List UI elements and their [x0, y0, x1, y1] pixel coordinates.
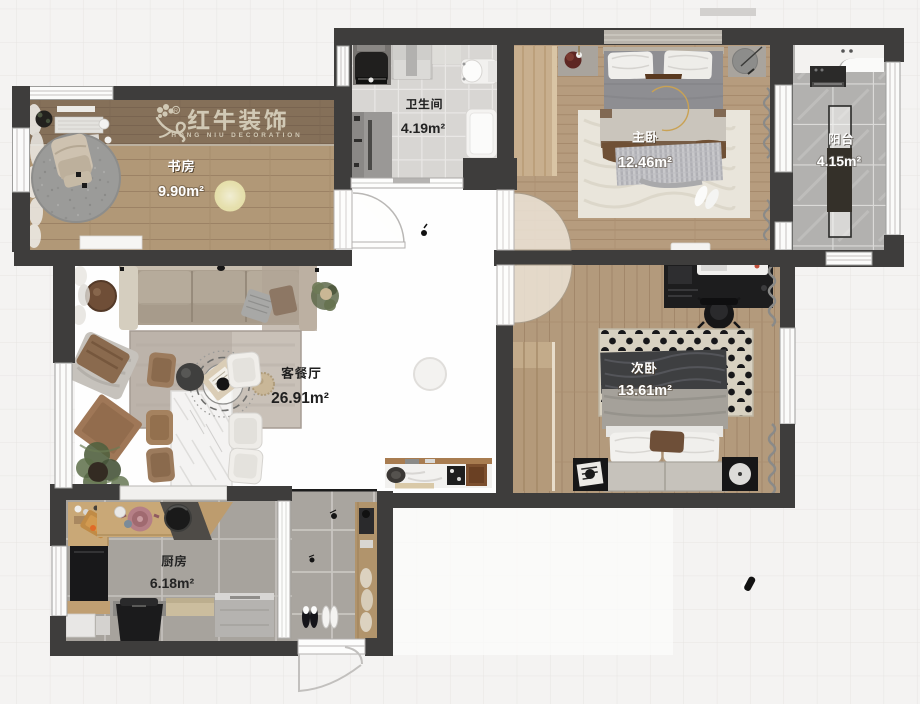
svg-text:4.19m²: 4.19m² — [401, 120, 446, 136]
svg-text:9.90m²: 9.90m² — [158, 184, 204, 200]
svg-text:26.91m²: 26.91m² — [271, 390, 329, 407]
svg-text:4.15m²: 4.15m² — [817, 153, 862, 169]
svg-text:13.61m²: 13.61m² — [618, 383, 672, 399]
svg-text:HONG NIU DECORATION: HONG NIU DECORATION — [171, 132, 302, 139]
svg-text:6.18m²: 6.18m² — [150, 575, 195, 591]
svg-text:R: R — [174, 108, 178, 114]
svg-text:12.46m²: 12.46m² — [618, 155, 672, 171]
